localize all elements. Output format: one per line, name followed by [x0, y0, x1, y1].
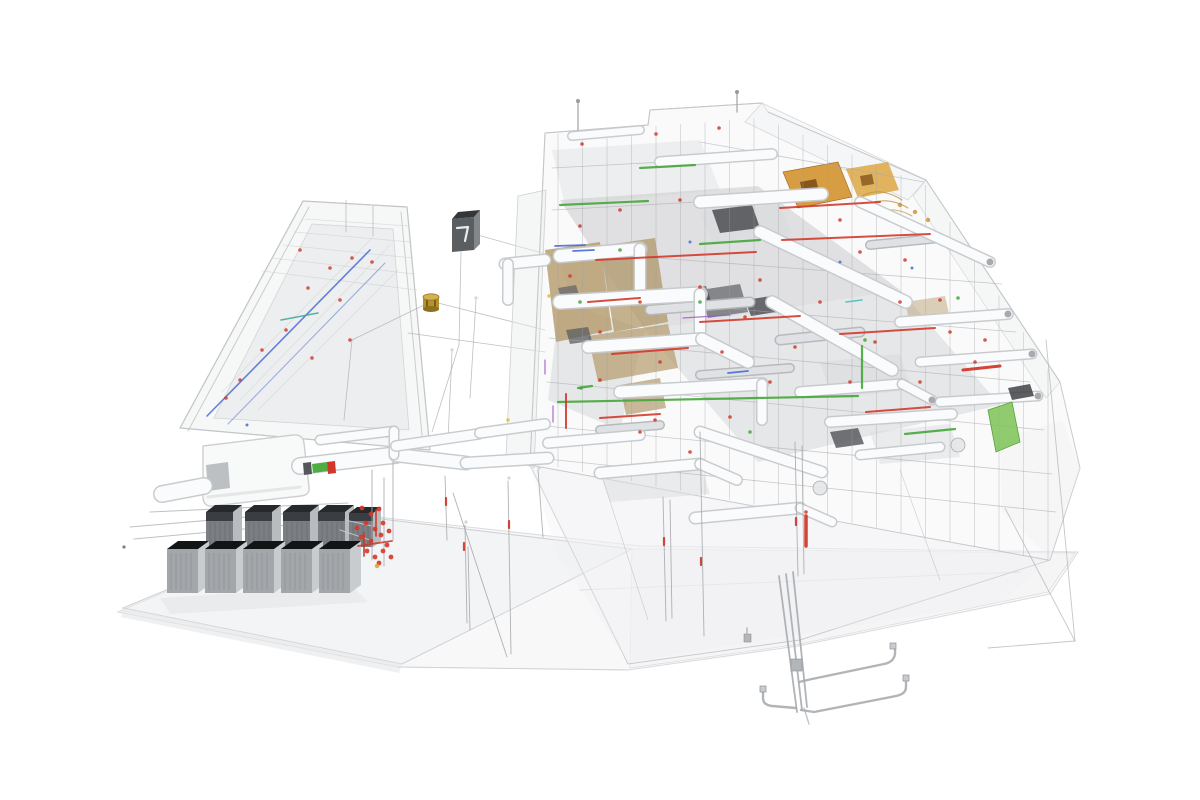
- cluster-red-valves: [373, 527, 378, 532]
- glass-wireframe: [988, 641, 1075, 648]
- red-valve-dots: [793, 345, 797, 349]
- stub-up-cap: [760, 686, 766, 692]
- cluster-red-valves: [385, 543, 390, 548]
- cluster-red-valves: [364, 521, 369, 526]
- red-valve-dots: [678, 198, 682, 202]
- condenser-back-band: [283, 512, 310, 521]
- cluster-red-valves: [377, 507, 382, 512]
- red-valve-dots: [973, 360, 977, 364]
- wing-red-marks: [260, 348, 264, 352]
- condenser-back-band: [318, 512, 345, 521]
- riser-fittings: [464, 520, 467, 523]
- cluster-red-valves: [355, 526, 360, 531]
- round-dampers: [951, 438, 965, 452]
- wing-red-marks: [350, 256, 354, 260]
- cluster-red-valves: [379, 533, 384, 538]
- red-valve-dots: [758, 278, 762, 282]
- red-valve-dots: [948, 330, 952, 334]
- buried-branch: [763, 692, 796, 708]
- round-dampers: [813, 481, 827, 495]
- red-valve-dots: [598, 330, 602, 334]
- buried-branch: [799, 649, 895, 682]
- condenser-front-front: [167, 549, 198, 593]
- cluster-red-valves: [369, 512, 374, 517]
- bim-screenshot: [0, 0, 1200, 800]
- condenser-front-side: [350, 541, 361, 593]
- red-valve-dots: [804, 510, 808, 514]
- wing-red-marks: [348, 338, 352, 342]
- orange-ahu-dark: [860, 174, 874, 186]
- wing-red-marks: [284, 328, 288, 332]
- fuel-tank-top: [423, 294, 439, 300]
- red-valve-dots: [698, 285, 702, 289]
- buried-branch: [801, 681, 906, 712]
- red-valve-dots: [838, 218, 842, 222]
- blue-pipes: [573, 250, 594, 251]
- cabinet-side: [474, 210, 480, 250]
- condenser-front-front: [319, 549, 350, 593]
- red-valve-dots: [818, 300, 822, 304]
- red-valve-dots: [638, 430, 642, 434]
- red-valve-dots: [743, 315, 747, 319]
- green-valve-dots: [578, 300, 582, 304]
- left-wing-building: [180, 200, 430, 450]
- cluster-red-valves: [365, 549, 370, 554]
- green-valve-dots: [863, 338, 867, 342]
- condenser-front-front: [281, 549, 312, 593]
- fuel-tank-base: [423, 306, 439, 312]
- condenser-front-front: [205, 549, 236, 593]
- site-marker: [122, 545, 125, 548]
- bim-model-render: [0, 0, 1200, 800]
- damper-actuator-dark: [303, 462, 312, 475]
- red-valve-dots: [983, 338, 987, 342]
- green-valve-dots: [618, 248, 622, 252]
- red-valve-dots: [768, 380, 772, 384]
- condenser-front-front: [243, 549, 274, 593]
- wing-red-marks: [328, 266, 332, 270]
- dark-equipment: [712, 205, 760, 233]
- yellow-dots: [506, 418, 510, 422]
- cluster-red-valves: [369, 539, 374, 544]
- blue-dots: [839, 261, 842, 264]
- duct-end-caps: [1005, 311, 1012, 318]
- red-valve-dots: [568, 274, 572, 278]
- cluster-orange-fitting: [375, 564, 379, 568]
- service-wires: [448, 352, 452, 440]
- damper-red: [327, 461, 336, 474]
- riser-fittings: [474, 296, 477, 299]
- wing-red-marks: [306, 286, 310, 290]
- supply-ducts: [560, 249, 640, 256]
- wing-red-marks: [370, 260, 374, 264]
- red-valve-dots: [848, 380, 852, 384]
- roof-stack-caps: [735, 90, 739, 94]
- red-valve-dots: [728, 415, 732, 419]
- red-valve-dots: [580, 142, 584, 146]
- duct-end-caps: [1029, 351, 1036, 358]
- service-wires: [470, 300, 476, 398]
- wing-red-marks: [338, 298, 342, 302]
- red-valve-dots: [653, 418, 657, 422]
- blue-dots: [911, 267, 914, 270]
- cluster-red-valves: [381, 521, 386, 526]
- duct-end-caps: [987, 259, 994, 266]
- red-valve-dots: [654, 132, 658, 136]
- riser-fittings: [507, 476, 510, 479]
- cluster-red-valves: [389, 555, 394, 560]
- wing-red-marks: [310, 356, 314, 360]
- cluster-red-valves: [373, 555, 378, 560]
- green-valve-dots: [748, 430, 752, 434]
- amber-fittings: [913, 210, 917, 214]
- red-valve-dots: [717, 126, 721, 130]
- riser-fittings: [450, 348, 453, 351]
- red-valve-dots: [918, 380, 922, 384]
- blue-pipes: [555, 245, 585, 246]
- riser-fittings: [537, 466, 540, 469]
- condenser-back-band: [245, 512, 272, 521]
- cluster-red-valves: [359, 535, 364, 540]
- green-valve-dots: [579, 386, 583, 390]
- cluster-red-valves: [381, 549, 386, 554]
- red-valve-dots: [938, 298, 942, 302]
- bundle-joint-box: [791, 659, 802, 671]
- red-valve-dots: [688, 450, 692, 454]
- return-ducts: [600, 425, 660, 430]
- supply-trunk: [162, 486, 204, 494]
- wing-red-marks: [238, 378, 242, 382]
- red-valve-dots: [720, 350, 724, 354]
- red-valve-dots: [898, 300, 902, 304]
- duct-end-caps: [929, 397, 936, 404]
- wing-red-marks: [298, 248, 302, 252]
- red-valve-dots: [903, 258, 907, 262]
- duct-end-caps: [1035, 393, 1042, 400]
- green-valve-dots: [698, 300, 702, 304]
- green-valve-dots: [956, 296, 960, 300]
- red-valve-dots: [873, 340, 877, 344]
- condenser-back-band: [206, 512, 233, 521]
- service-wires: [432, 345, 459, 432]
- roof-stack-caps: [576, 99, 580, 103]
- red-valve-dots: [858, 250, 862, 254]
- amber-fittings: [926, 218, 930, 222]
- red-valve-dots: [598, 378, 602, 382]
- red-valve-dots: [618, 208, 622, 212]
- ground-fitting: [744, 634, 751, 642]
- supply-trunk: [396, 455, 466, 463]
- blue-dots: [246, 424, 249, 427]
- service-wires: [459, 252, 461, 345]
- stub-up-cap: [903, 675, 909, 681]
- supply-trunk: [466, 458, 548, 463]
- airside-duct-assembly: [162, 424, 548, 506]
- cabinet-front: [452, 217, 474, 252]
- red-valve-dots: [578, 224, 582, 228]
- wing-red-marks: [224, 396, 228, 400]
- cluster-red-valves: [360, 506, 365, 511]
- stub-up-cap: [890, 643, 896, 649]
- red-valve-dots: [638, 300, 642, 304]
- red-valve-dots: [658, 360, 662, 364]
- yellow-dots: [547, 294, 551, 298]
- blue-dots: [689, 241, 692, 244]
- cluster-red-valves: [387, 529, 392, 534]
